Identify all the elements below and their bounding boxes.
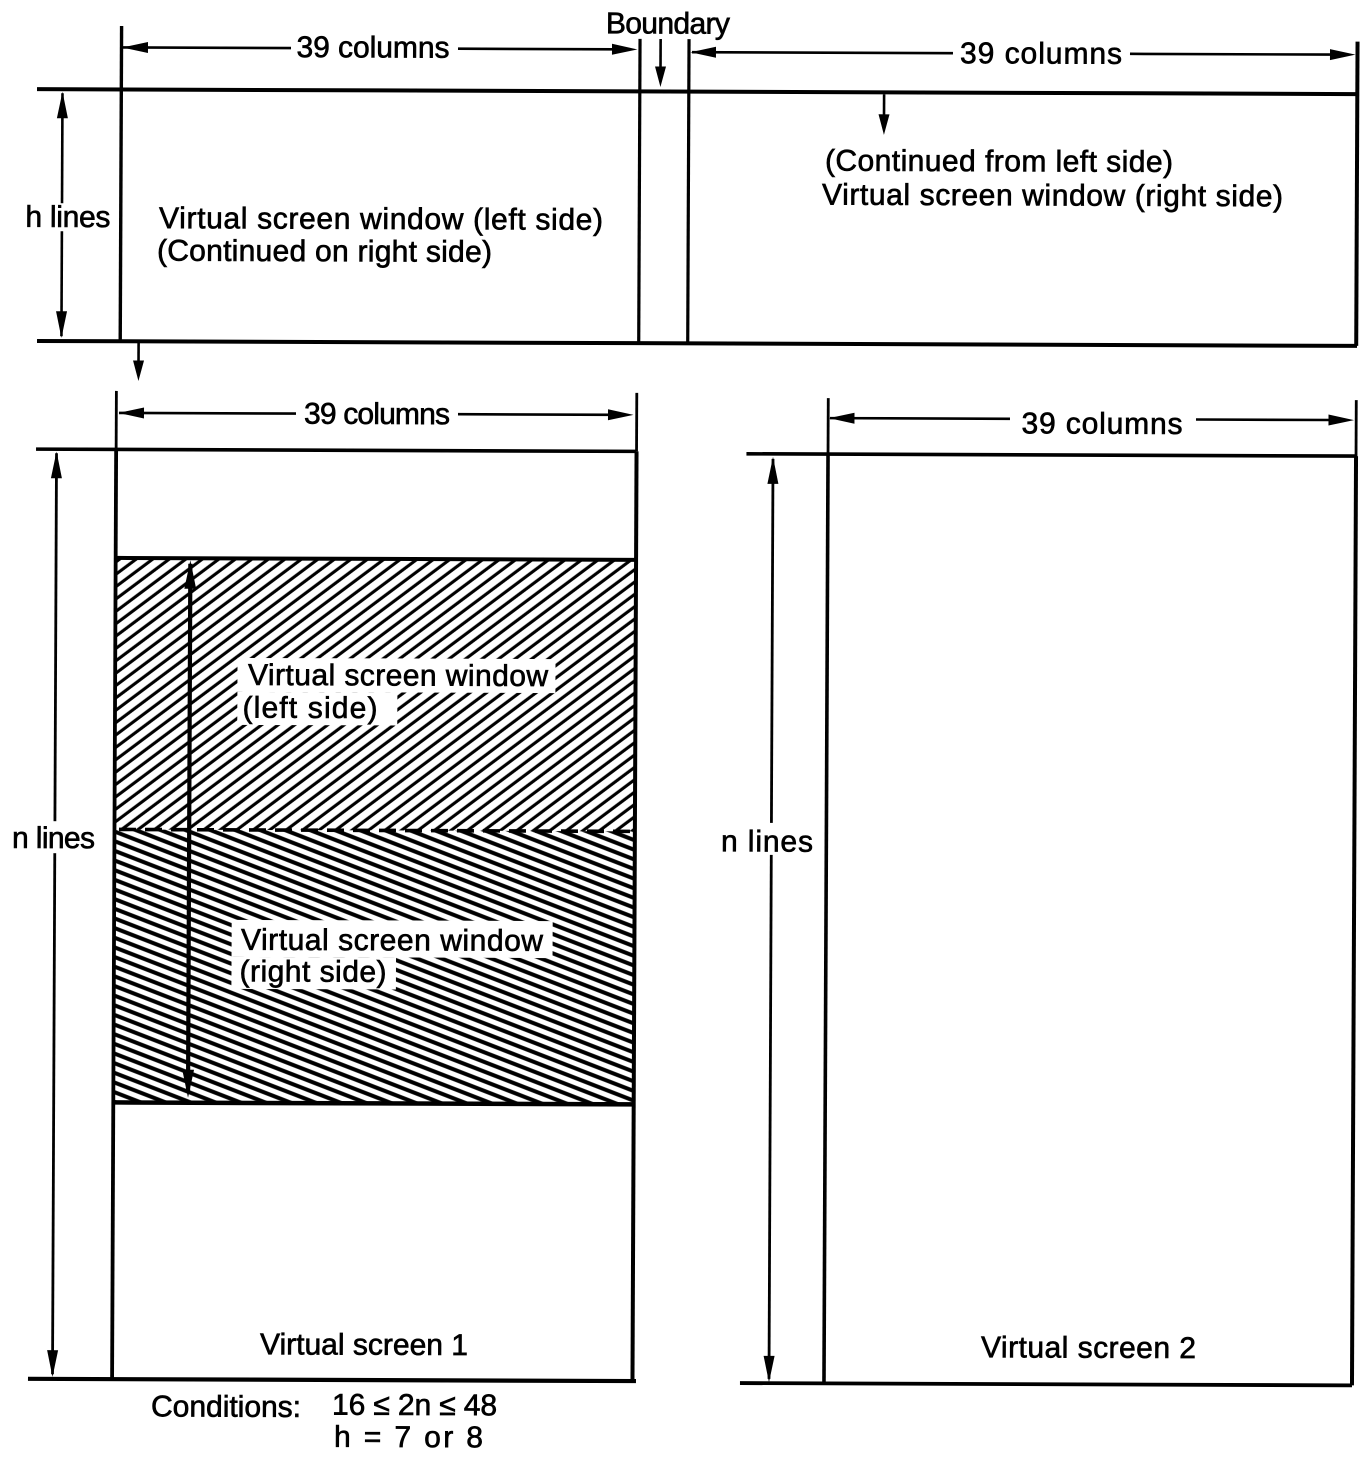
svg-text:n lines: n lines: [12, 822, 95, 855]
svg-text:16 ≤ 2n ≤ 48: 16 ≤ 2n ≤ 48: [332, 1389, 497, 1423]
svg-text:Boundary: Boundary: [606, 7, 730, 40]
svg-text:39 columns: 39 columns: [1021, 407, 1182, 441]
svg-text:Virtual screen window: Virtual screen window: [248, 659, 548, 693]
svg-text:(left side): (left side): [242, 692, 377, 726]
svg-text:h = 7 or 8: h = 7 or 8: [334, 1421, 483, 1455]
svg-text:(right side): (right side): [239, 955, 386, 989]
svg-text:Virtual screen 1: Virtual screen 1: [260, 1328, 468, 1362]
svg-text:n lines: n lines: [721, 825, 813, 858]
svg-text:Virtual screen window (right s: Virtual screen window (right side): [822, 179, 1283, 214]
svg-text:(Continued on right side): (Continued on right side): [157, 235, 492, 269]
svg-text:39 columns: 39 columns: [296, 31, 449, 65]
svg-text:Virtual screen 2: Virtual screen 2: [981, 1331, 1196, 1365]
svg-text:Virtual screen window (left si: Virtual screen window (left side): [159, 202, 603, 237]
svg-text:h lines: h lines: [25, 201, 110, 234]
svg-text:(Continued from left side): (Continued from left side): [825, 145, 1173, 179]
svg-text:39 columns: 39 columns: [304, 398, 450, 432]
svg-text:39 columns: 39 columns: [960, 37, 1122, 71]
svg-text:Virtual screen window: Virtual screen window: [241, 924, 543, 958]
svg-text:Conditions:: Conditions:: [151, 1390, 301, 1424]
